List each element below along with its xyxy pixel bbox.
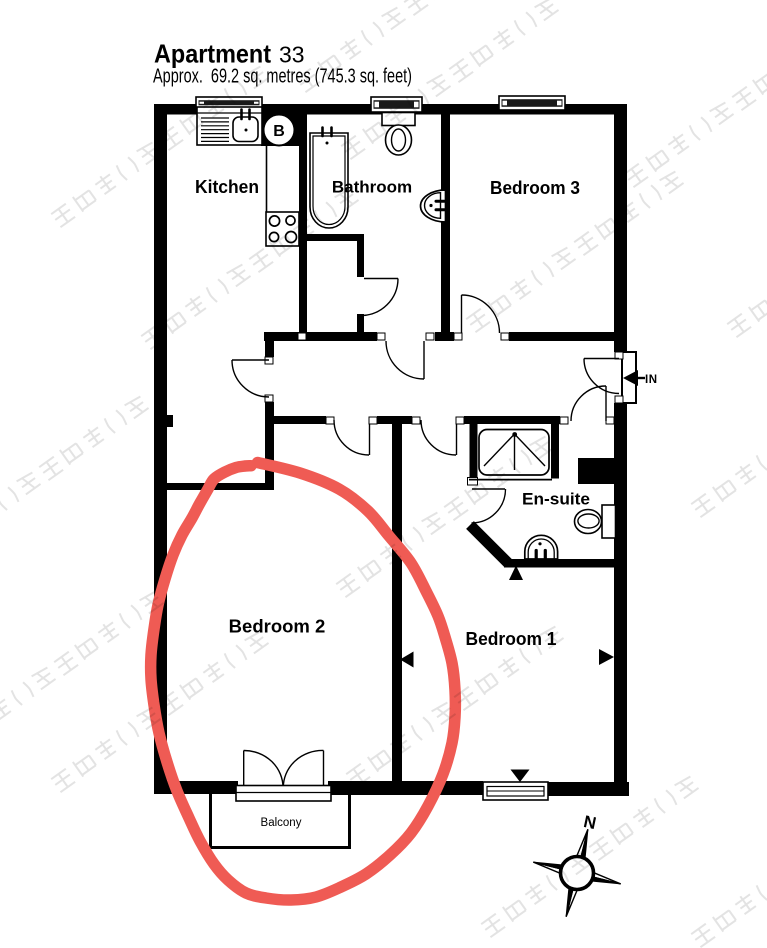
svg-text:En-suite: En-suite (522, 490, 590, 509)
svg-text:Balcony: Balcony (261, 817, 302, 829)
svg-text:Bathroom: Bathroom (332, 178, 412, 197)
svg-text:Approx. 69.2 sq. metres (745.: Approx. 69.2 sq. metres (745.3 sq. feet) (153, 66, 412, 88)
svg-text:Kitchen: Kitchen (195, 176, 259, 197)
svg-text:IN: IN (645, 374, 658, 386)
svg-text:B: B (273, 123, 285, 140)
svg-text:Bedroom 3: Bedroom 3 (490, 178, 580, 198)
svg-text:Bedroom 2: Bedroom 2 (229, 616, 326, 637)
svg-text:33: 33 (279, 42, 305, 68)
svg-text:Bedroom 1: Bedroom 1 (466, 629, 557, 649)
svg-text:Apartment: Apartment (154, 39, 271, 69)
